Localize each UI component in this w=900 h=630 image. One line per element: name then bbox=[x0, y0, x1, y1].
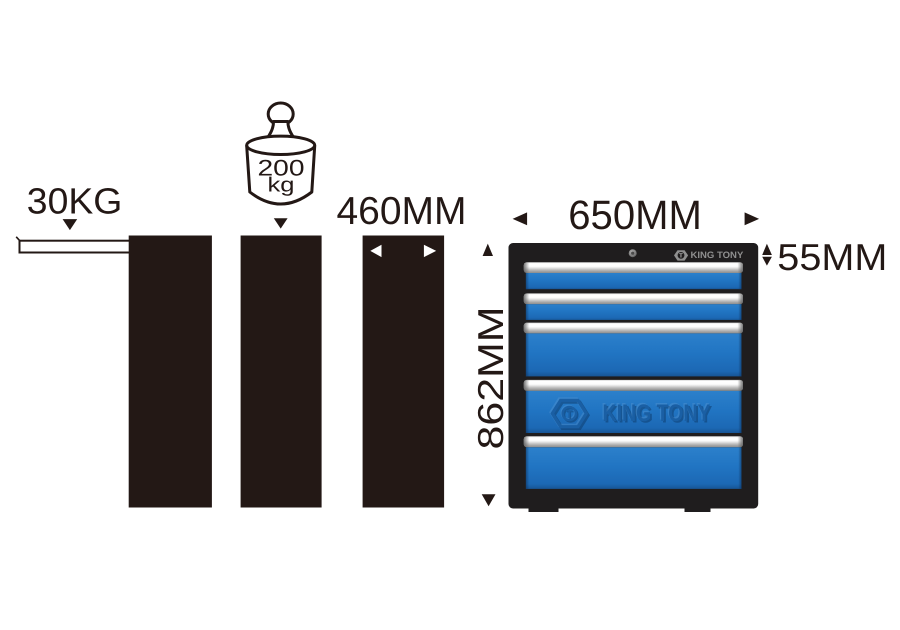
svg-text:460MM: 460MM bbox=[337, 190, 467, 233]
svg-text:T: T bbox=[566, 409, 573, 421]
svg-text:kg: kg bbox=[268, 174, 295, 197]
svg-text:KING TONY: KING TONY bbox=[691, 250, 745, 260]
svg-text:862MM: 862MM bbox=[470, 307, 511, 450]
svg-text:30KG: 30KG bbox=[27, 181, 123, 222]
svg-text:55MM: 55MM bbox=[777, 236, 887, 278]
svg-text:T: T bbox=[679, 253, 683, 260]
svg-text:650MM: 650MM bbox=[568, 192, 702, 238]
svg-text:KING TONY: KING TONY bbox=[603, 400, 711, 427]
